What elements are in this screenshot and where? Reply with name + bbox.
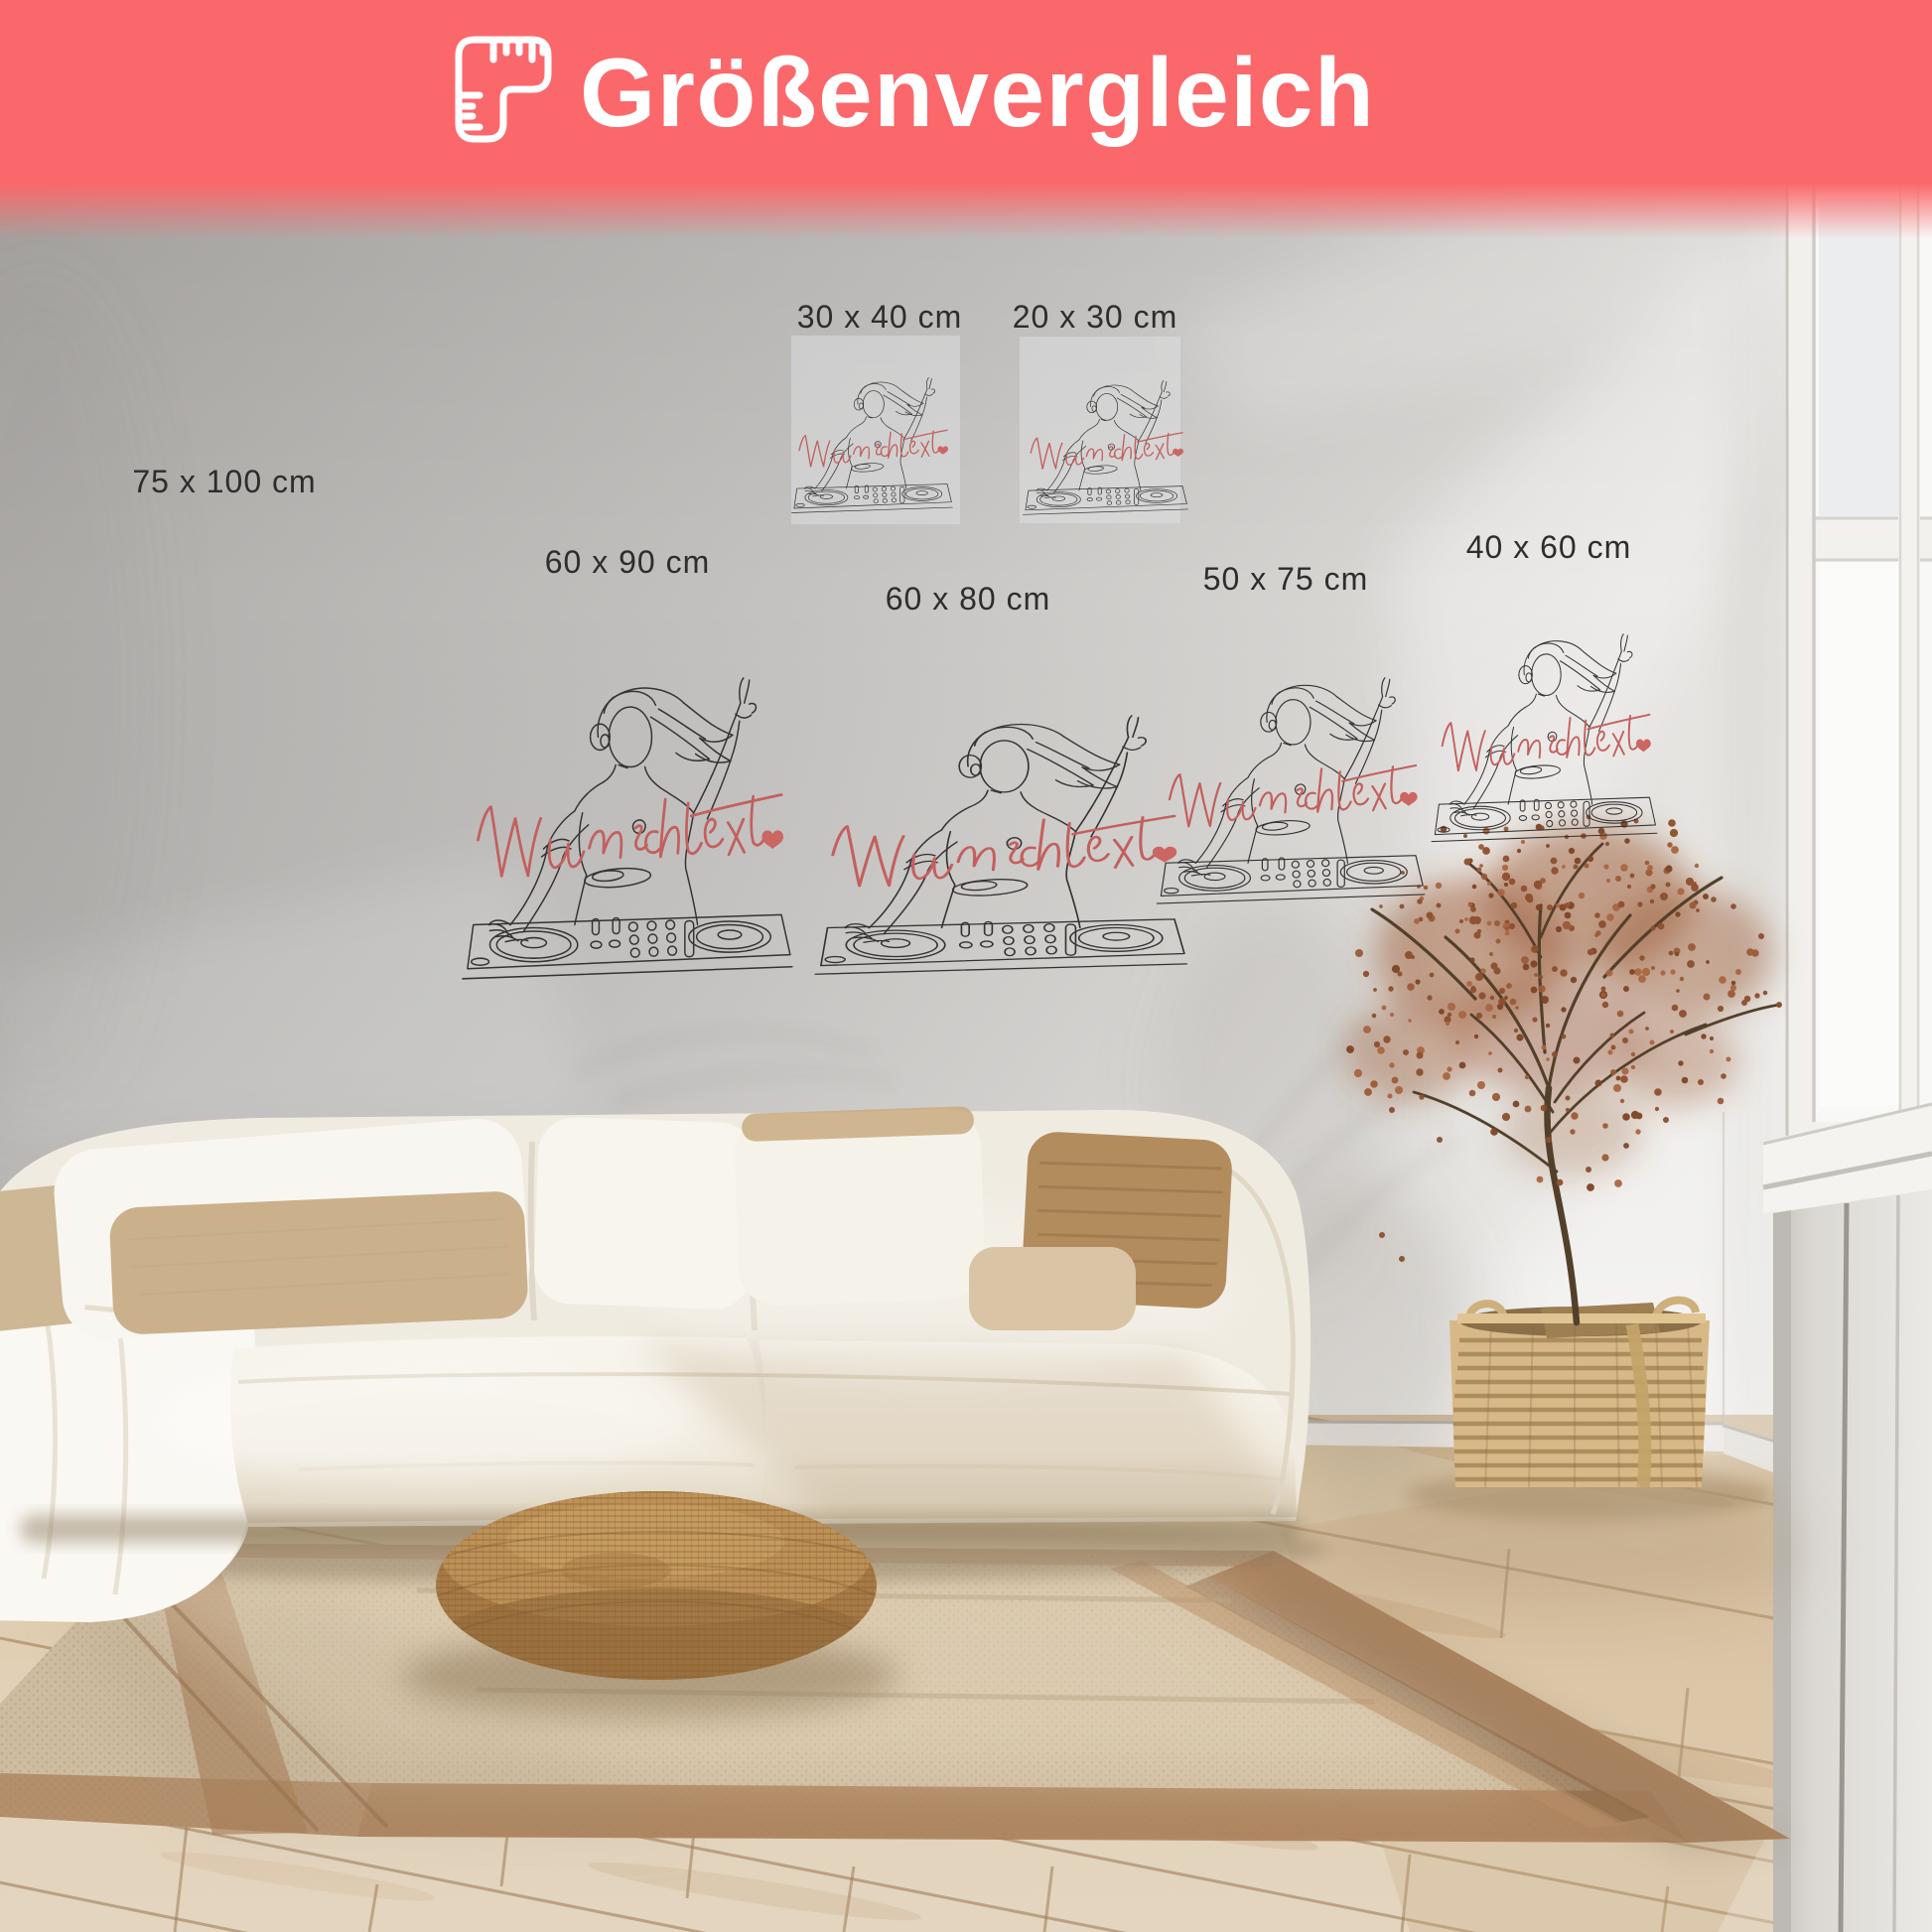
svg-text:60 x 90 cm: 60 x 90 cm (545, 544, 711, 580)
svg-text:60 x 80 cm: 60 x 80 cm (886, 581, 1051, 617)
svg-text:50 x 75 cm: 50 x 75 cm (1203, 561, 1369, 597)
svg-text:40 x 60 cm: 40 x 60 cm (1466, 529, 1632, 565)
svg-text:20 x 30 cm: 20 x 30 cm (1013, 299, 1178, 335)
svg-text:75 x 100 cm: 75 x 100 cm (132, 464, 316, 499)
svg-text:30 x 40 cm: 30 x 40 cm (797, 299, 963, 335)
svg-text:Größenvergleich: Größenvergleich (580, 38, 1375, 147)
